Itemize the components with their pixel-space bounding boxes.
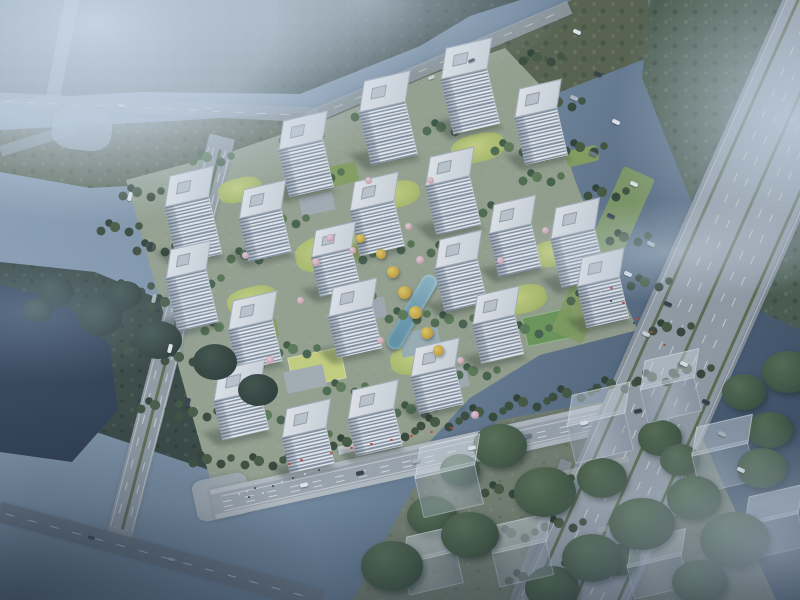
pedestrian (622, 312, 624, 314)
car (612, 119, 621, 126)
blossom-tree (266, 356, 274, 364)
tree-cluster (672, 560, 728, 600)
tree-cluster (134, 321, 182, 359)
roof-unit (239, 304, 255, 318)
roof-unit (339, 291, 355, 305)
gingko-tree (387, 266, 399, 278)
roof-unit (371, 85, 387, 100)
roof-unit (562, 211, 578, 226)
tree-cluster (108, 281, 142, 308)
blossom-tree (497, 257, 504, 264)
blossom-tree (326, 234, 334, 242)
tree-cluster (577, 458, 627, 498)
tree-cluster (700, 512, 770, 568)
tree-cluster (747, 412, 793, 449)
tree-cluster (441, 512, 499, 558)
tree-cluster (361, 541, 423, 591)
blossom-tree (416, 256, 424, 264)
gingko-tree (409, 306, 422, 319)
roof-unit (452, 52, 468, 67)
tree-cluster (562, 534, 622, 582)
tree-cluster (514, 467, 576, 517)
blossom-tree (297, 297, 304, 304)
gingko-tree (433, 345, 444, 356)
tree-grove (643, 317, 697, 343)
aerial-render-canvas (0, 0, 800, 600)
blossom-tree (405, 223, 412, 230)
tree-grove (600, 227, 654, 253)
blossom-tree (349, 247, 356, 254)
blossom-tree (471, 411, 479, 419)
blossom-tree (542, 227, 549, 234)
residential-tower (352, 73, 418, 166)
roof-unit (500, 208, 515, 222)
pedestrian (272, 485, 274, 487)
blossom-tree (377, 337, 384, 344)
roof-unit (293, 412, 309, 426)
residential-tower (419, 149, 481, 235)
tree-grove (131, 395, 185, 421)
residential-tower (322, 280, 383, 359)
tree-cluster (473, 424, 527, 467)
roof-unit (588, 261, 603, 275)
pedestrian (292, 477, 294, 479)
roof-unit (436, 160, 452, 174)
pedestrian (246, 490, 248, 492)
tree-cluster (762, 351, 800, 393)
roof-unit (250, 193, 265, 207)
pedestrian (600, 292, 602, 294)
gingko-tree (356, 234, 365, 243)
blossom-tree (427, 177, 434, 184)
pedestrian (262, 492, 264, 494)
blossom-tree (312, 258, 320, 266)
tree-cluster (737, 448, 787, 488)
gingko-tree (421, 327, 433, 339)
pedestrian (304, 473, 306, 475)
pedestrian (633, 322, 635, 324)
tree-cluster (667, 476, 721, 519)
gingko-tree (376, 249, 386, 259)
car (118, 104, 125, 107)
lane-marking (5, 513, 315, 599)
roof-unit (289, 124, 305, 138)
pedestrian (644, 334, 646, 336)
pedestrian (254, 487, 256, 489)
gingko-tree (398, 286, 411, 299)
tree-grove (91, 217, 145, 243)
residential-tower (508, 81, 568, 165)
roof-unit (361, 185, 377, 199)
pedestrian (238, 493, 240, 495)
car (205, 107, 212, 110)
blossom-tree (365, 177, 372, 184)
blossom-tree (457, 357, 464, 364)
pedestrian (318, 469, 320, 471)
tree-cluster (609, 498, 675, 551)
tree-cluster (193, 344, 237, 379)
intersection-plaza-nw (50, 103, 114, 153)
tree-cluster (23, 298, 53, 322)
tree-grove (183, 449, 237, 475)
render-scene-layer (0, 0, 800, 600)
roof-unit (446, 243, 461, 257)
roof-unit (483, 299, 498, 313)
roof-unit (176, 253, 191, 267)
road-southwest-dark (0, 502, 325, 600)
pedestrian (248, 496, 250, 498)
roof-unit (359, 393, 375, 407)
pedestrian (281, 481, 283, 483)
roof-unit (525, 92, 540, 106)
tree-grove (513, 47, 567, 73)
pedestrian (610, 300, 612, 302)
tree-cluster (722, 374, 766, 409)
residential-tower (571, 250, 630, 328)
roof-unit (176, 180, 192, 195)
tree-cluster (238, 374, 278, 406)
blossom-tree (242, 252, 249, 259)
